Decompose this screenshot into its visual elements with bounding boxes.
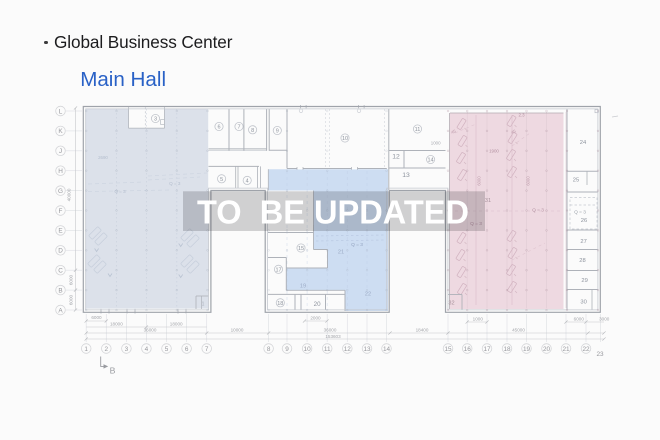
svg-text:21: 21	[338, 250, 344, 256]
svg-text:6000: 6000	[477, 176, 482, 186]
svg-text:Q = 3: Q = 3	[532, 208, 544, 214]
svg-text:32: 32	[448, 301, 454, 307]
svg-text:16: 16	[464, 346, 472, 353]
svg-text:17: 17	[483, 346, 491, 353]
svg-text:1000: 1000	[431, 141, 441, 146]
svg-text:27: 27	[580, 239, 586, 245]
svg-text:9: 9	[276, 129, 279, 135]
svg-text:3: 3	[154, 117, 157, 123]
svg-text:H: H	[58, 168, 63, 175]
svg-text:1: 1	[202, 302, 205, 308]
svg-text:6000: 6000	[574, 317, 585, 322]
svg-text:11: 11	[324, 346, 331, 353]
svg-text:22: 22	[365, 292, 371, 298]
svg-text:28: 28	[579, 258, 585, 264]
svg-text:4: 4	[246, 178, 249, 184]
svg-text:F: F	[59, 208, 63, 215]
svg-text:2000: 2000	[310, 316, 321, 321]
svg-text:153603: 153603	[325, 334, 341, 339]
svg-text:15: 15	[298, 246, 304, 252]
svg-text:18400: 18400	[416, 328, 429, 333]
svg-text:40000: 40000	[67, 188, 72, 201]
svg-text:5: 5	[220, 177, 223, 183]
svg-text:6000: 6000	[526, 176, 531, 186]
svg-text:1900: 1900	[489, 149, 499, 154]
svg-text:10: 10	[342, 136, 348, 142]
svg-text:3: 3	[125, 346, 129, 353]
svg-text:24: 24	[580, 140, 587, 146]
svg-text:Q = 3: Q = 3	[574, 210, 586, 216]
svg-text:45000: 45000	[512, 328, 525, 333]
svg-text:18: 18	[503, 346, 511, 353]
svg-text:8: 8	[251, 128, 254, 134]
svg-text:12: 12	[344, 346, 352, 353]
svg-text:14: 14	[383, 346, 391, 353]
svg-text:1000: 1000	[473, 317, 484, 322]
svg-text:L: L	[59, 108, 63, 115]
svg-text:Q = 3: Q = 3	[351, 242, 363, 248]
svg-text:D: D	[58, 248, 63, 255]
svg-text:12: 12	[392, 154, 400, 161]
svg-text:13: 13	[402, 172, 410, 179]
svg-text:TO BE UPDATED: TO BE UPDATED	[197, 194, 469, 231]
svg-text:36000: 36000	[144, 328, 157, 333]
svg-text:20: 20	[314, 301, 321, 308]
svg-text:36000: 36000	[324, 328, 337, 333]
svg-text:25: 25	[573, 178, 579, 184]
svg-text:3000: 3000	[599, 317, 610, 322]
svg-text:6: 6	[185, 346, 189, 353]
svg-text:31: 31	[485, 198, 491, 204]
svg-text:E: E	[58, 228, 62, 235]
svg-text:14: 14	[428, 158, 434, 164]
svg-text:18: 18	[277, 301, 283, 307]
svg-text:Q = 3: Q = 3	[169, 181, 181, 186]
svg-text:7: 7	[205, 346, 209, 353]
svg-text:17: 17	[275, 267, 281, 273]
svg-text:6000: 6000	[91, 315, 102, 320]
svg-text:6000: 6000	[69, 274, 74, 285]
svg-text:8: 8	[267, 346, 271, 353]
svg-text:21: 21	[562, 346, 570, 353]
svg-text:G: G	[58, 188, 63, 195]
svg-text:C: C	[58, 268, 63, 275]
svg-text:1: 1	[84, 346, 88, 353]
svg-text:26: 26	[581, 218, 587, 224]
svg-text:5: 5	[165, 346, 169, 353]
svg-text:13: 13	[363, 346, 371, 353]
svg-text:29: 29	[581, 278, 587, 284]
svg-text:19: 19	[523, 346, 531, 353]
svg-text:18000: 18000	[110, 322, 123, 327]
svg-text:20: 20	[543, 346, 551, 353]
svg-text:6: 6	[217, 125, 220, 131]
svg-text:B: B	[110, 366, 116, 376]
svg-text:10000: 10000	[231, 328, 244, 333]
svg-text:J: J	[59, 148, 62, 155]
svg-text:11: 11	[415, 127, 421, 133]
svg-text:30: 30	[580, 299, 586, 305]
svg-text:B: B	[58, 287, 62, 294]
svg-text:18000: 18000	[170, 322, 183, 327]
svg-text:23: 23	[596, 351, 604, 358]
svg-text:K: K	[58, 128, 63, 135]
svg-text:7: 7	[237, 125, 240, 131]
svg-text:4: 4	[145, 346, 149, 353]
svg-text:2690: 2690	[98, 155, 108, 160]
svg-text:2: 2	[105, 346, 109, 353]
svg-text:6000: 6000	[69, 294, 74, 305]
svg-text:22: 22	[582, 346, 590, 353]
svg-text:A: A	[58, 307, 63, 314]
svg-text:10: 10	[304, 346, 312, 353]
svg-text:19: 19	[300, 284, 306, 290]
svg-text:9: 9	[285, 346, 289, 353]
svg-text:15: 15	[444, 346, 452, 353]
